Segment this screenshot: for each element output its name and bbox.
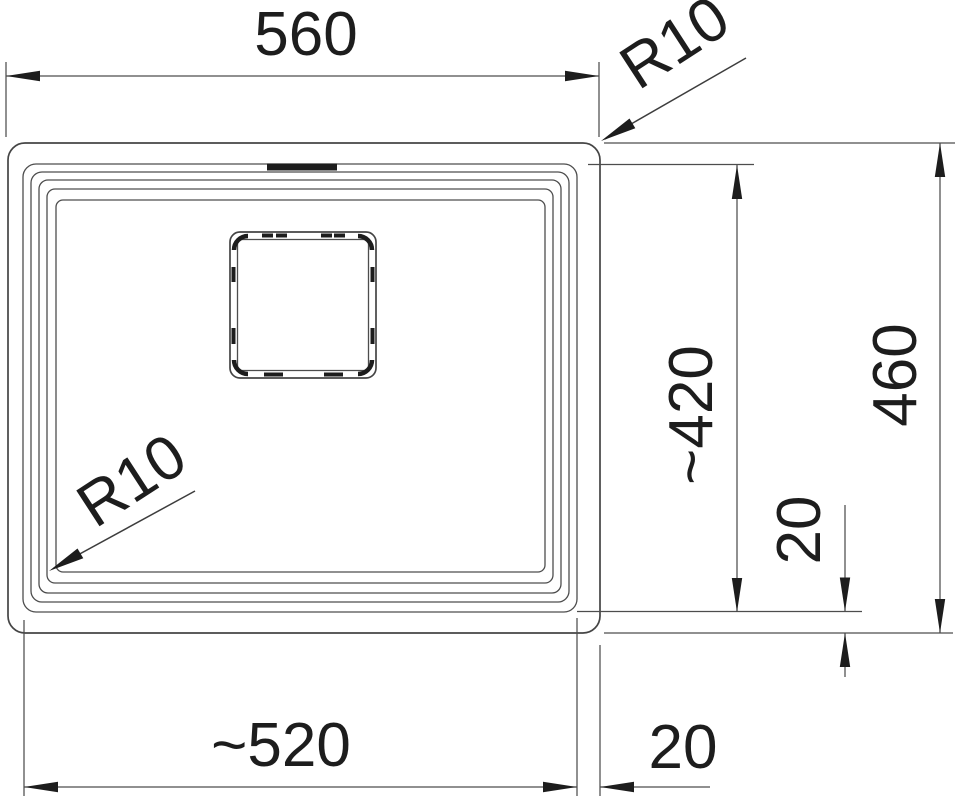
dim-outer-width: 560 bbox=[6, 0, 599, 137]
arrowhead-down bbox=[732, 578, 742, 612]
dim-outer-width-label: 560 bbox=[254, 0, 357, 69]
annotation-basin-corner-radius: R10 bbox=[49, 421, 198, 571]
dim-rim-offset-right: 20 bbox=[765, 496, 850, 677]
outer-corner-radius-label: R10 bbox=[608, 0, 741, 103]
sink-rim-step-2 bbox=[31, 172, 569, 602]
arrowhead-right bbox=[543, 782, 577, 792]
arrowhead-right bbox=[565, 71, 599, 81]
sink-technical-drawing: 560 R10 ~420 460 20 ~520 bbox=[0, 0, 958, 800]
dim-rim-offset-right-label: 20 bbox=[765, 496, 834, 565]
dim-outer-height-label: 460 bbox=[861, 323, 930, 426]
arrowhead-left bbox=[600, 782, 634, 792]
dim-rim-offset-bottom: 20 bbox=[600, 645, 717, 796]
dim-basin-width: ~520 bbox=[24, 618, 577, 796]
dim-basin-width-label: ~520 bbox=[211, 711, 351, 780]
overflow-slot bbox=[267, 164, 337, 171]
sink-outer-outline bbox=[8, 143, 600, 633]
arrowhead-left bbox=[24, 782, 58, 792]
drain-inner-frame bbox=[238, 240, 369, 371]
arrowhead-up bbox=[732, 165, 742, 199]
drain-square bbox=[230, 232, 376, 378]
dim-rim-offset-bottom-label: 20 bbox=[649, 713, 718, 782]
arrowhead-up bbox=[840, 633, 850, 667]
arrowhead-up bbox=[935, 143, 945, 177]
leader-arrowhead bbox=[601, 119, 635, 142]
dim-basin-height-label: ~420 bbox=[657, 345, 726, 485]
drain-outer-frame bbox=[230, 232, 376, 378]
arrowhead-down bbox=[840, 578, 850, 612]
sink-body bbox=[8, 143, 600, 633]
arrowhead-down bbox=[935, 599, 945, 633]
annotation-outer-corner-radius: R10 bbox=[601, 0, 746, 141]
arrowhead-left bbox=[6, 71, 40, 81]
drain-corner-marks bbox=[234, 236, 372, 374]
drawing-canvas: 560 R10 ~420 460 20 ~520 bbox=[0, 0, 958, 800]
drain-gasket-ticks bbox=[234, 236, 373, 375]
basin-corner-radius-label: R10 bbox=[65, 421, 198, 541]
leader-arrowhead bbox=[49, 549, 83, 572]
